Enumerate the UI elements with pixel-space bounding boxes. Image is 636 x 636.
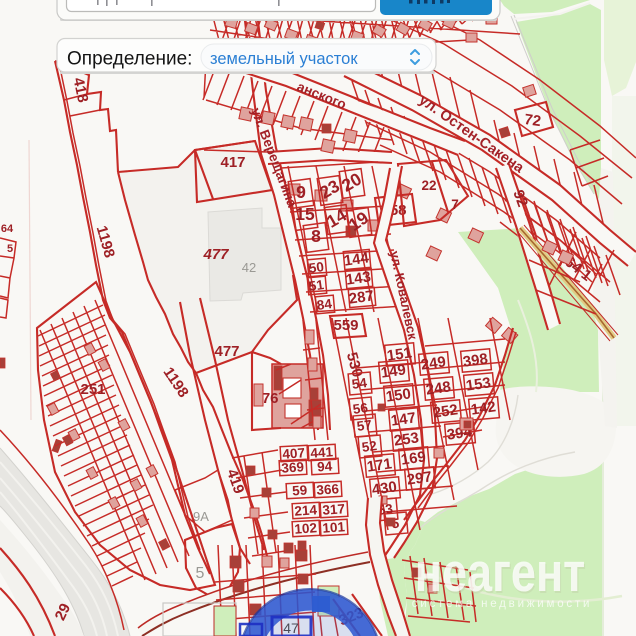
svg-text:9А: 9А (193, 509, 209, 524)
svg-text:252: 252 (432, 401, 459, 421)
svg-text:169: 169 (400, 448, 427, 468)
svg-text:369: 369 (281, 459, 305, 476)
svg-text:147: 147 (390, 409, 417, 429)
svg-text:5: 5 (7, 243, 13, 255)
svg-text:101: 101 (322, 519, 346, 536)
svg-text:398: 398 (462, 350, 489, 370)
svg-text:142: 142 (470, 398, 497, 418)
svg-text:249: 249 (420, 353, 447, 373)
svg-text:Определение:: Определение: (67, 49, 192, 70)
svg-text:94: 94 (317, 458, 334, 474)
svg-text:64: 64 (1, 223, 14, 235)
svg-text:150: 150 (385, 385, 412, 405)
svg-text:земельный участок: земельный участок (210, 50, 358, 68)
svg-text:297: 297 (406, 468, 433, 488)
svg-text:52: 52 (361, 438, 378, 455)
svg-text:253: 253 (393, 429, 420, 449)
svg-text:59: 59 (292, 483, 308, 499)
svg-text:84: 84 (316, 296, 333, 313)
svg-text:22: 22 (421, 178, 436, 193)
svg-text:477: 477 (214, 343, 239, 360)
svg-text:54: 54 (351, 375, 368, 392)
svg-text:317: 317 (322, 501, 346, 518)
svg-text:102: 102 (294, 520, 318, 537)
svg-text:417: 417 (220, 154, 245, 171)
svg-text:214: 214 (294, 502, 318, 519)
svg-text:8: 8 (311, 226, 321, 246)
svg-text:51: 51 (308, 277, 325, 294)
svg-text:72: 72 (523, 111, 542, 130)
svg-text:143: 143 (345, 268, 372, 288)
svg-text:42: 42 (242, 260, 256, 275)
svg-text:47: 47 (283, 620, 299, 636)
svg-text:система недвижимости: система недвижимости (412, 598, 593, 610)
svg-text:153: 153 (465, 374, 492, 394)
svg-text:559: 559 (333, 317, 358, 334)
svg-text:5: 5 (196, 565, 205, 582)
svg-text:15: 15 (295, 204, 315, 224)
svg-text:7: 7 (451, 197, 459, 212)
svg-text:366: 366 (316, 481, 340, 498)
svg-text:287: 287 (348, 287, 375, 307)
svg-text:171: 171 (366, 455, 393, 475)
svg-text:50: 50 (308, 259, 325, 276)
svg-text:251: 251 (80, 381, 105, 398)
svg-text:149: 149 (380, 361, 407, 381)
svg-text:144: 144 (343, 249, 371, 269)
svg-text:57: 57 (356, 417, 373, 434)
svg-text:неагент: неагент (415, 541, 586, 603)
svg-text:248: 248 (425, 378, 452, 398)
svg-text:477: 477 (202, 246, 229, 263)
